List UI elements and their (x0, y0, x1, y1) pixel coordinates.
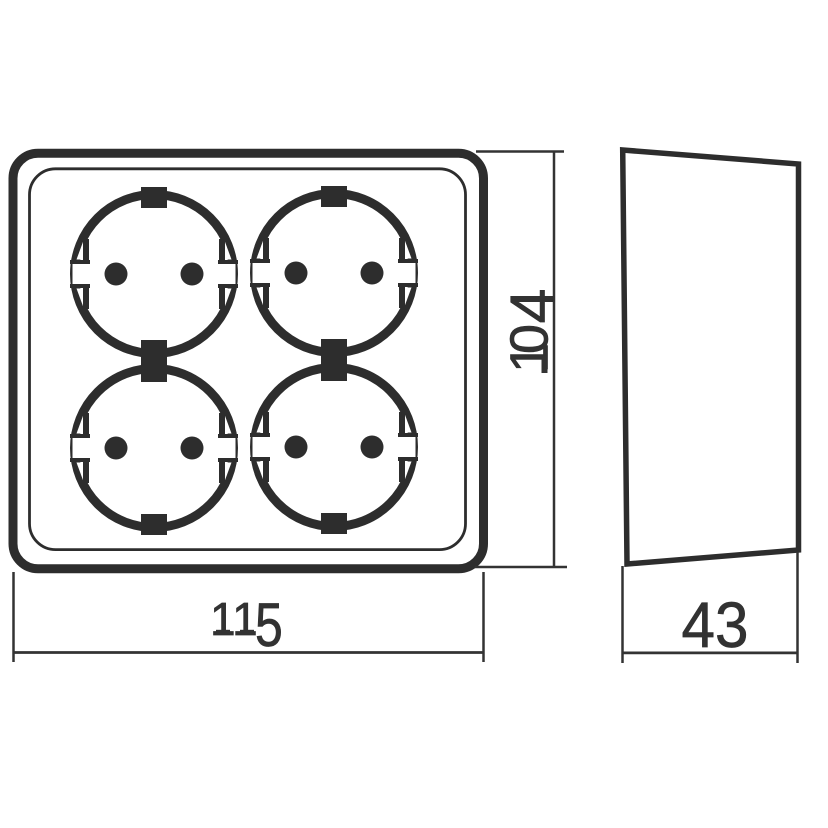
svg-text:1: 1 (500, 343, 560, 373)
svg-text:4: 4 (499, 288, 569, 323)
svg-text:5: 5 (255, 591, 283, 659)
svg-text:11: 11 (210, 593, 258, 645)
svg-text:43: 43 (682, 590, 749, 661)
